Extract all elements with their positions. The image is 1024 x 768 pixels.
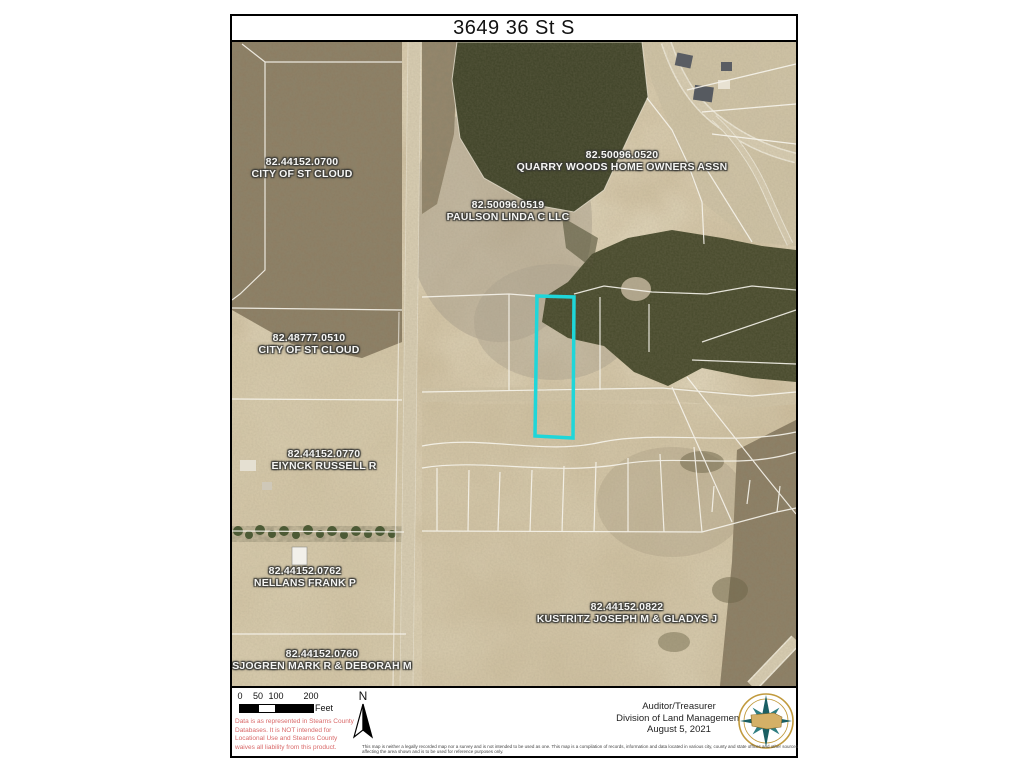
scale-bar-graphic <box>239 704 314 713</box>
scale-tick: 200 <box>303 691 318 701</box>
parcel-label-0760: 82.44152.0760 SJOGREN MARK R & DEBORAH M <box>232 648 412 672</box>
data-disclaimer: Data is as represented in Stearns County… <box>235 718 357 752</box>
parcel-label-0520: 82.50096.0520 QUARRY WOODS HOME OWNERS A… <box>517 149 728 173</box>
title-bar: 3649 36 St S <box>232 16 796 42</box>
scale-tick: 0 <box>237 691 242 701</box>
page-title: 3649 36 St S <box>453 17 575 40</box>
parcel-label-0519: 82.50096.0519 PAULSON LINDA C LLC <box>447 199 570 223</box>
parcel-label-0762: 82.44152.0762 NELLANS FRANK P <box>254 565 356 589</box>
aerial-basemap <box>232 42 796 686</box>
stearns-county-compass-logo <box>737 692 795 750</box>
aerial-parcel-map: 82.44152.0700 CITY OF ST CLOUD 82.50096.… <box>232 42 796 686</box>
parcel-label-0770: 82.44152.0770 EIYNCK RUSSELL R <box>271 448 376 472</box>
map-footer: 0 50 100 200 Feet Data is as represented… <box>232 686 796 756</box>
parcel-label-0700: 82.44152.0700 CITY OF ST CLOUD <box>251 156 352 180</box>
north-arrow-icon <box>350 703 376 739</box>
scale-unit: Feet <box>315 703 333 713</box>
scale-tick: 50 <box>253 691 263 701</box>
map-document: 3649 36 St S <box>230 14 798 758</box>
fine-print-disclaimer: This map is neither a legally recorded m… <box>362 744 802 754</box>
parcel-label-0822: 82.44152.0822 KUSTRITZ JOSEPH M & GLADYS… <box>537 601 718 625</box>
north-label: N <box>348 689 378 703</box>
north-arrow: N <box>348 689 378 741</box>
scale-tick: 100 <box>268 691 283 701</box>
parcel-label-0510: 82.48777.0510 CITY OF ST CLOUD <box>258 332 359 356</box>
farm-building <box>292 547 307 565</box>
